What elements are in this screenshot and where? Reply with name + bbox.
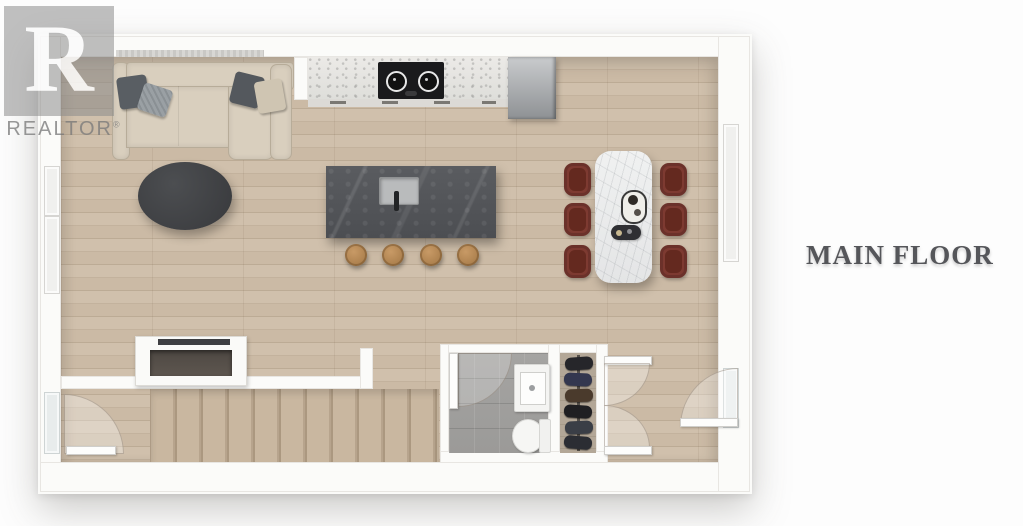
kitchen-island — [326, 166, 496, 238]
dining-chair — [564, 203, 591, 236]
drawer-handle — [482, 101, 496, 104]
island-faucet — [394, 191, 399, 211]
drawer-handle — [382, 101, 398, 104]
patio-door-glass — [44, 392, 60, 454]
drawer-handle — [330, 101, 346, 104]
refrigerator — [508, 57, 556, 119]
tray-item — [616, 230, 622, 236]
coffee-table — [138, 162, 232, 230]
sofa-seam — [178, 86, 179, 146]
shoes — [565, 356, 594, 371]
bathroom-wall-left — [440, 344, 449, 463]
closet-door-leaf — [604, 446, 652, 455]
entry-door-leaf — [680, 418, 738, 427]
tv-console — [135, 336, 247, 386]
bathroom-wall-top — [440, 344, 608, 353]
window-left-lower — [44, 216, 60, 294]
staircase — [150, 389, 439, 462]
dining-chair — [660, 245, 687, 278]
realtor-logo-icon: R — [4, 6, 114, 116]
island-sink — [379, 177, 419, 205]
realtor-wordmark: REALTOR® — [2, 118, 126, 141]
shoes — [564, 372, 593, 386]
serving-board — [621, 190, 647, 224]
cup — [628, 195, 638, 205]
bathroom-door-leaf — [449, 353, 458, 409]
bar-stool — [457, 244, 479, 266]
window-right — [723, 124, 739, 262]
realtor-logo-letter: R — [24, 11, 93, 107]
shoes — [565, 420, 594, 434]
burner-icon — [418, 71, 439, 92]
burner-icon — [386, 71, 407, 92]
dining-chair — [564, 163, 591, 196]
floor-plan — [38, 34, 752, 494]
toilet-tank — [539, 419, 551, 453]
cooktop — [378, 62, 444, 99]
faucet-icon — [529, 385, 535, 391]
shoes — [564, 404, 593, 419]
dining-chair — [660, 203, 687, 236]
window-sill-strip — [116, 50, 264, 57]
cooktop-control — [405, 91, 417, 96]
stair-wall-post — [360, 348, 373, 389]
pillow-beige — [253, 78, 286, 114]
registered-mark: ® — [113, 119, 122, 129]
bar-stool — [345, 244, 367, 266]
tray — [611, 225, 641, 240]
wall-bottom — [40, 462, 750, 492]
drawer-handle — [434, 101, 450, 104]
small-dish — [634, 209, 641, 216]
bar-stool — [420, 244, 442, 266]
floor-plan-page: MAIN FLOOR R REALTOR® — [0, 0, 1023, 526]
realtor-brand-text: REALTOR — [6, 118, 113, 140]
counter-end-panel — [294, 57, 308, 100]
page-title: MAIN FLOOR — [806, 240, 994, 271]
door-leaf — [66, 446, 116, 455]
shoes — [565, 389, 593, 403]
bar-stool — [382, 244, 404, 266]
dining-chair — [660, 163, 687, 196]
dining-chair — [564, 245, 591, 278]
window-left-upper — [44, 166, 60, 216]
console-shelf — [150, 350, 232, 376]
tray-item — [627, 229, 632, 234]
tv-screen — [158, 339, 230, 345]
shoes — [563, 435, 592, 450]
bathroom-vanity — [514, 364, 550, 412]
dining-table — [595, 151, 652, 283]
